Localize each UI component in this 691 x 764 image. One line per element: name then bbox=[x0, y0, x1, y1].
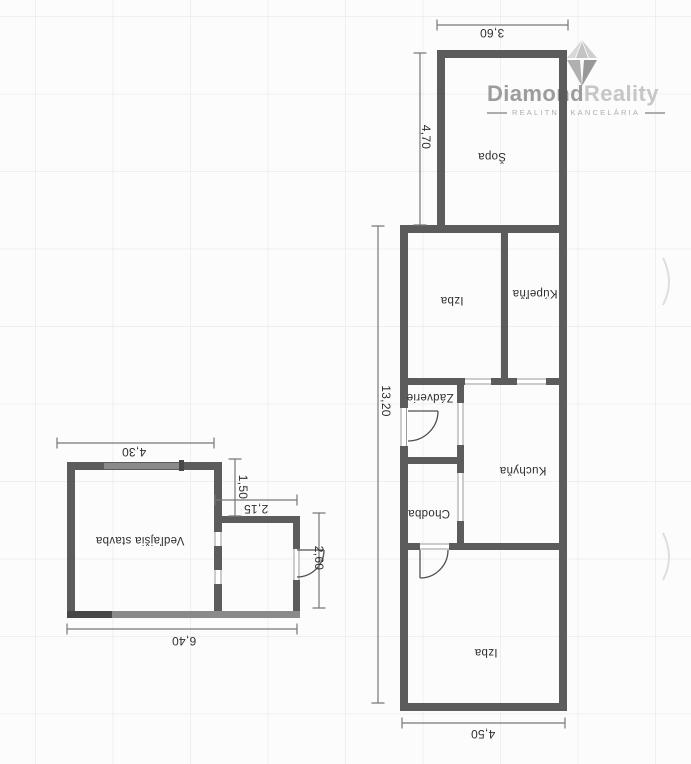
dimension-line-outbuilding-bottom-width bbox=[67, 624, 297, 635]
room-label-zadverie: Zádverie bbox=[406, 391, 453, 403]
room-label-chodba: Chodba bbox=[408, 507, 450, 519]
outbuilding-openings bbox=[214, 532, 300, 584]
dim-label-4-70: 4,70 bbox=[419, 125, 433, 150]
room-label-vedlajsia-stavba: Vedľajšia stavba bbox=[96, 534, 185, 546]
dim-label-2-15: 2,15 bbox=[244, 502, 269, 516]
dimension-line-total-height bbox=[372, 226, 385, 703]
room-label-izba-upper: Izba bbox=[441, 294, 464, 306]
dim-label-4-30: 4,30 bbox=[122, 445, 147, 459]
dim-label-4-50: 4,50 bbox=[471, 727, 496, 741]
scan-artifacts bbox=[663, 258, 669, 580]
dim-label-13-20: 13,20 bbox=[379, 385, 393, 417]
room-label-izba-lower: Izba bbox=[475, 646, 498, 658]
dim-label-1-50: 1,50 bbox=[236, 475, 250, 500]
room-label-kupelna: Kúpeľňa bbox=[512, 287, 557, 299]
dim-label-3-60: 3,60 bbox=[480, 26, 505, 40]
floor-plan-drawing bbox=[0, 0, 691, 764]
izba-door-swing bbox=[420, 550, 448, 578]
entrance-door-swing bbox=[408, 411, 438, 441]
dim-label-2-60: 2,60 bbox=[312, 546, 326, 571]
scanned-floor-plan-page: DiamondReality REALITNÁ KANCELÁRIA bbox=[0, 0, 691, 764]
room-label-kuchyna: Kuchyňa bbox=[500, 464, 547, 476]
dim-label-6-40: 6,40 bbox=[172, 634, 197, 648]
room-label-sopa: Šopa bbox=[478, 150, 506, 162]
